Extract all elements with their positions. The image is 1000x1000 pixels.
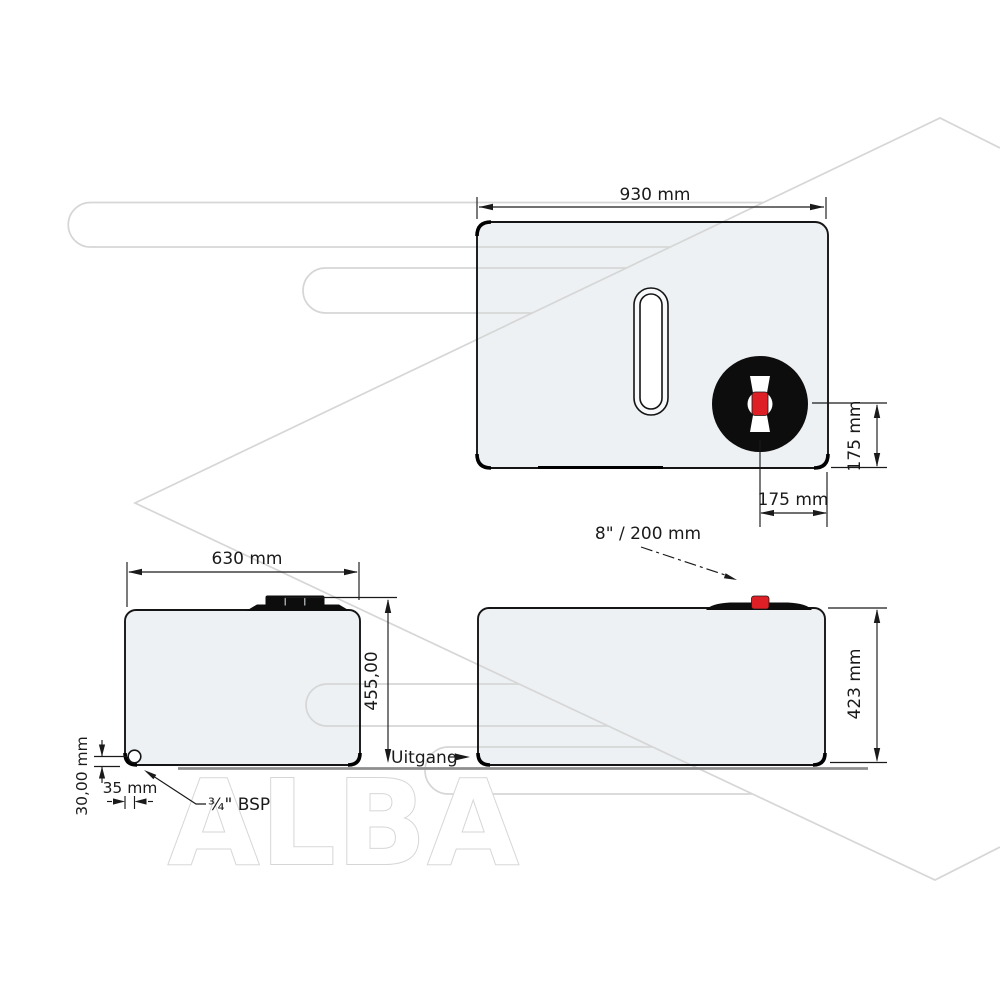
- dim-arrow: [344, 569, 358, 575]
- callout-lid-spec: 8" / 200 mm: [595, 524, 737, 580]
- dim-arrow: [128, 569, 142, 575]
- watermark-brand-text: ALBA: [168, 754, 520, 892]
- dim-423: 423 mm: [828, 608, 887, 763]
- drawing-page: ALBA: [0, 0, 1000, 1000]
- leader-arrow: [724, 573, 737, 580]
- leader-arrow: [144, 770, 156, 779]
- lid-red-cap-profile: [752, 596, 770, 609]
- outlet-circle: [128, 750, 141, 763]
- lid-icon: [712, 356, 808, 452]
- dim-label-630: 630 mm: [212, 549, 283, 569]
- dim-35: 35 mm: [103, 779, 158, 809]
- dim-arrow: [135, 798, 147, 804]
- dim-arrow: [813, 510, 827, 516]
- technical-drawing: ALBA: [0, 0, 1000, 1000]
- dim-arrow: [113, 798, 125, 804]
- outlet-label: Uitgang: [391, 748, 458, 768]
- dim-label-455: 455,00: [362, 651, 382, 710]
- dim-arrow: [874, 609, 880, 623]
- dim-label-35: 35 mm: [103, 779, 158, 797]
- front-view-body-fill: [125, 610, 360, 765]
- oval-slot-inner: [640, 294, 662, 409]
- dim-label-30: 30,00 mm: [73, 736, 91, 816]
- side-view-body-fill: [478, 608, 825, 765]
- dim-arrow: [760, 510, 774, 516]
- dim-arrow: [874, 404, 880, 418]
- dim-label-423: 423 mm: [845, 649, 865, 720]
- lid-spec-label: 8" / 200 mm: [595, 524, 701, 544]
- dim-arrow: [385, 599, 391, 613]
- dim-arrow: [479, 204, 493, 210]
- dim-label-175-vertical: 175 mm: [845, 401, 865, 472]
- dim-arrow: [99, 767, 105, 779]
- dim-arrow: [874, 748, 880, 762]
- dim-arrow: [810, 204, 824, 210]
- lid-red-vent: [752, 392, 768, 416]
- dim-label-175-horizontal: 175 mm: [758, 490, 829, 510]
- dim-arrow: [874, 453, 880, 467]
- dim-label-930: 930 mm: [620, 185, 691, 205]
- dim-arrow: [99, 745, 105, 757]
- thread-label: ¾" BSP: [208, 795, 270, 815]
- dim-30: 30,00 mm: [73, 736, 127, 816]
